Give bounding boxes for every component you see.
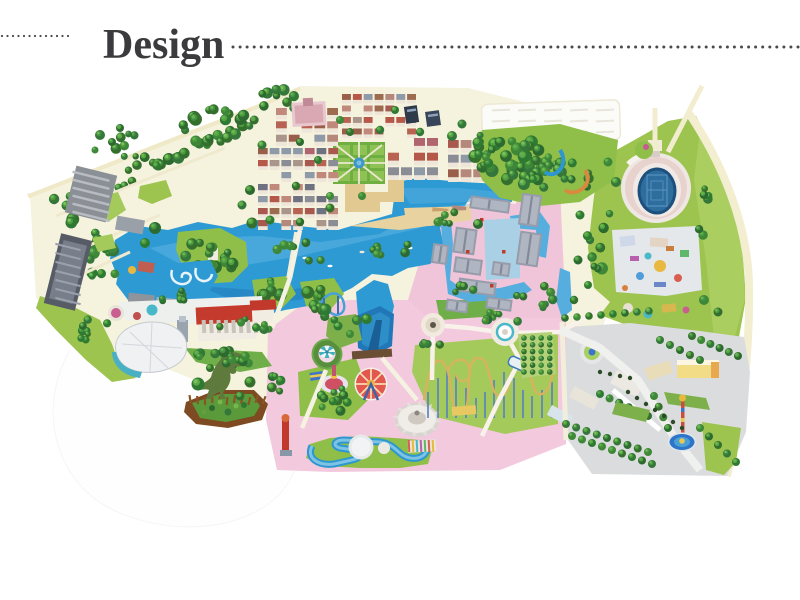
svg-text:Design: Design — [103, 22, 224, 68]
